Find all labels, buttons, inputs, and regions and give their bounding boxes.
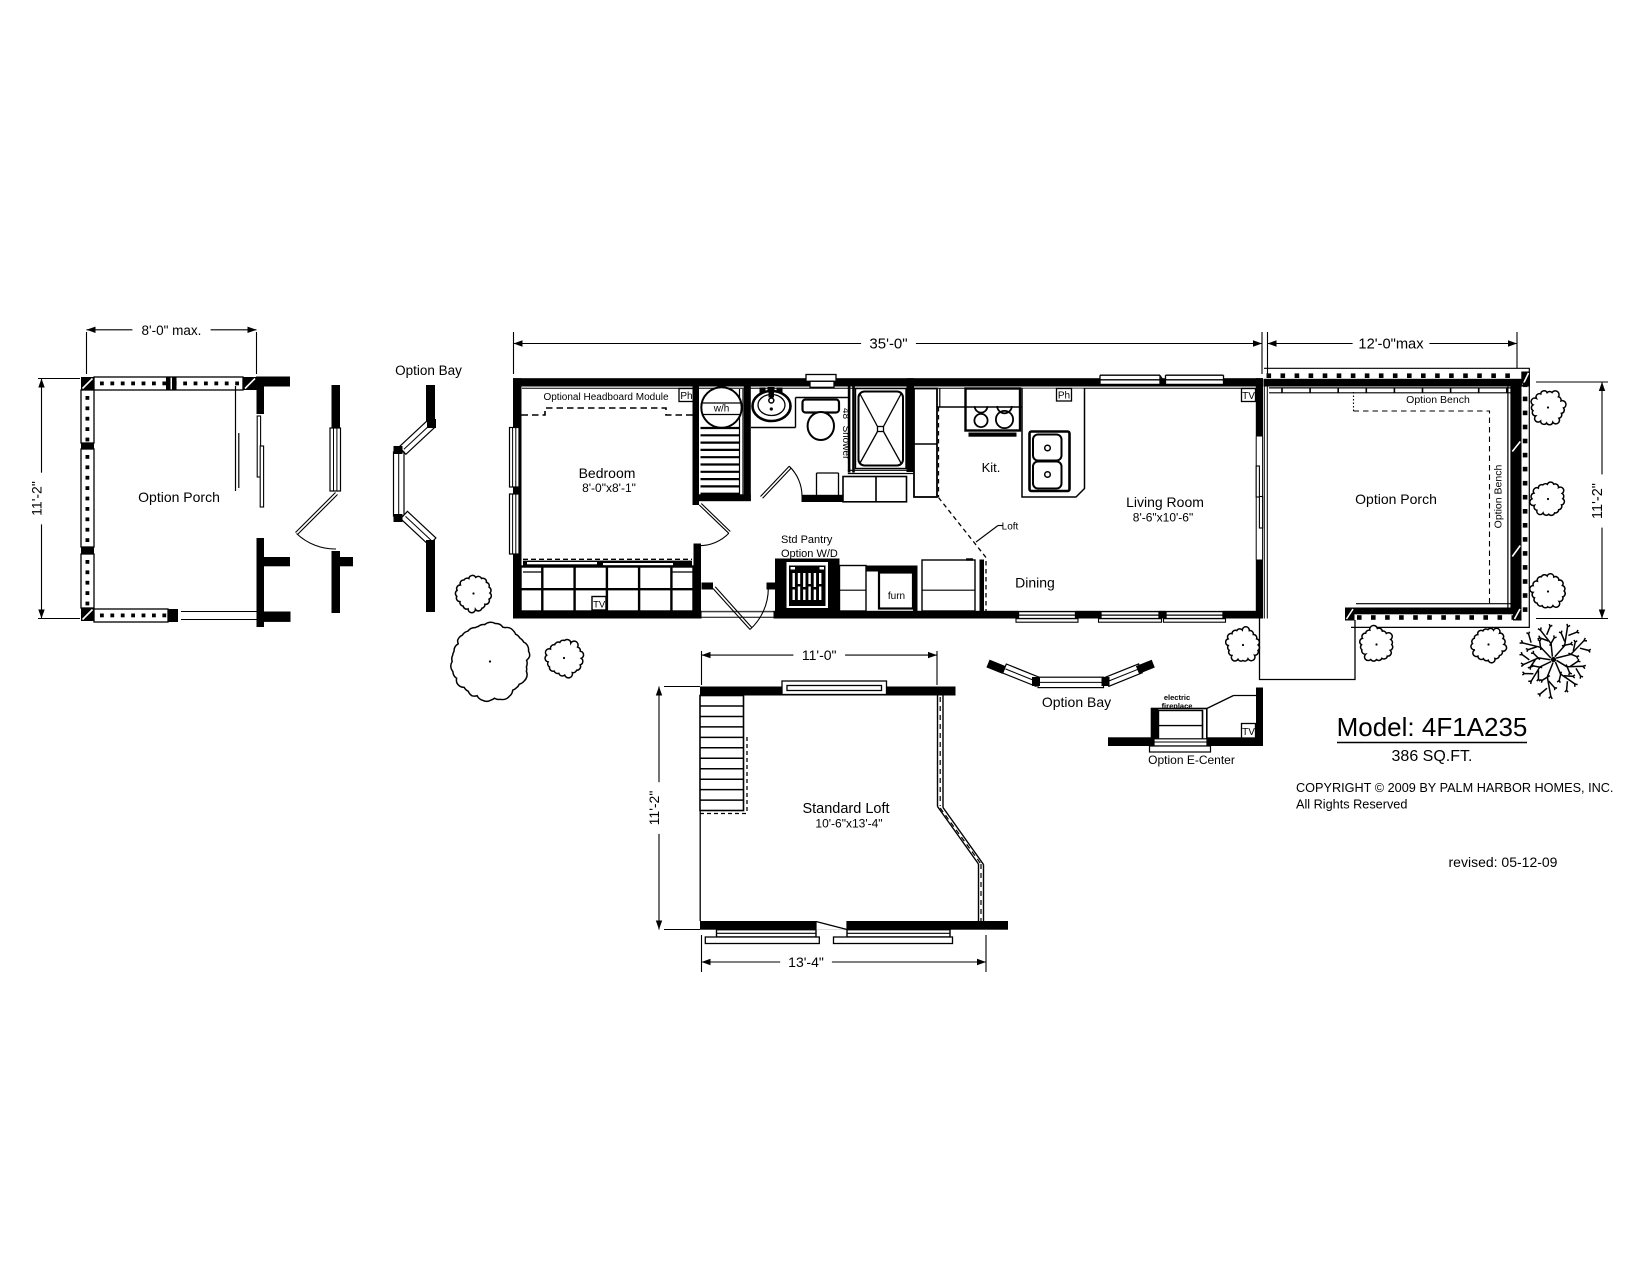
svg-text:Option W/D: Option W/D	[781, 548, 838, 560]
svg-text:Option Bay: Option Bay	[395, 363, 462, 378]
svg-text:8'-6"x10'-6": 8'-6"x10'-6"	[1133, 511, 1193, 525]
svg-text:Option Bench: Option Bench	[1406, 394, 1470, 406]
svg-text:Option Porch: Option Porch	[1355, 491, 1437, 507]
svg-text:12'-0"max: 12'-0"max	[1358, 337, 1424, 353]
svg-text:Dining: Dining	[1015, 575, 1055, 591]
svg-text:Optional Headboard Module: Optional Headboard Module	[543, 392, 669, 403]
svg-text:Option Porch: Option Porch	[138, 489, 220, 505]
svg-text:Living Room: Living Room	[1126, 494, 1204, 510]
svg-text:Std Pantry: Std Pantry	[781, 534, 833, 546]
svg-text:35'-0": 35'-0"	[869, 336, 907, 353]
svg-text:Ph: Ph	[680, 391, 692, 402]
svg-text:furn: furn	[888, 591, 905, 602]
svg-text:Ph: Ph	[1058, 391, 1070, 402]
svg-text:11'-2": 11'-2"	[29, 481, 45, 516]
svg-text:11'-2": 11'-2"	[646, 791, 662, 826]
svg-text:Kit.: Kit.	[982, 460, 1001, 475]
svg-text:386 SQ.FT.: 386 SQ.FT.	[1392, 748, 1473, 765]
svg-text:All Rights Reserved: All Rights Reserved	[1296, 798, 1407, 812]
svg-text:TV: TV	[593, 599, 606, 610]
svg-text:Loft: Loft	[1002, 522, 1019, 533]
svg-text:11'-2": 11'-2"	[1590, 483, 1606, 519]
svg-text:Model: 4F1A235: Model: 4F1A235	[1337, 712, 1528, 742]
svg-text:TV: TV	[1242, 391, 1255, 402]
svg-text:COPYRIGHT © 2009 BY PALM HARBO: COPYRIGHT © 2009 BY PALM HARBOR HOMES, I…	[1296, 781, 1613, 795]
svg-text:10'-6"x13'-4": 10'-6"x13'-4"	[815, 817, 882, 831]
svg-text:8'-0"x8'-1": 8'-0"x8'-1"	[582, 481, 636, 495]
svg-text:11'-0": 11'-0"	[802, 647, 837, 663]
svg-text:w/h: w/h	[713, 404, 730, 415]
svg-text:Option Bay: Option Bay	[1042, 694, 1111, 710]
svg-text:13'-4": 13'-4"	[788, 954, 824, 970]
svg-text:8'-0" max.: 8'-0" max.	[142, 323, 202, 338]
svg-text:Option E-Center: Option E-Center	[1148, 753, 1235, 767]
svg-text:Option Bench: Option Bench	[1493, 465, 1505, 529]
svg-text:TV: TV	[1242, 727, 1255, 738]
svg-text:Bedroom: Bedroom	[579, 465, 636, 481]
svg-text:revised: 05-12-09: revised: 05-12-09	[1449, 854, 1558, 870]
svg-text:Standard Loft: Standard Loft	[802, 801, 889, 817]
